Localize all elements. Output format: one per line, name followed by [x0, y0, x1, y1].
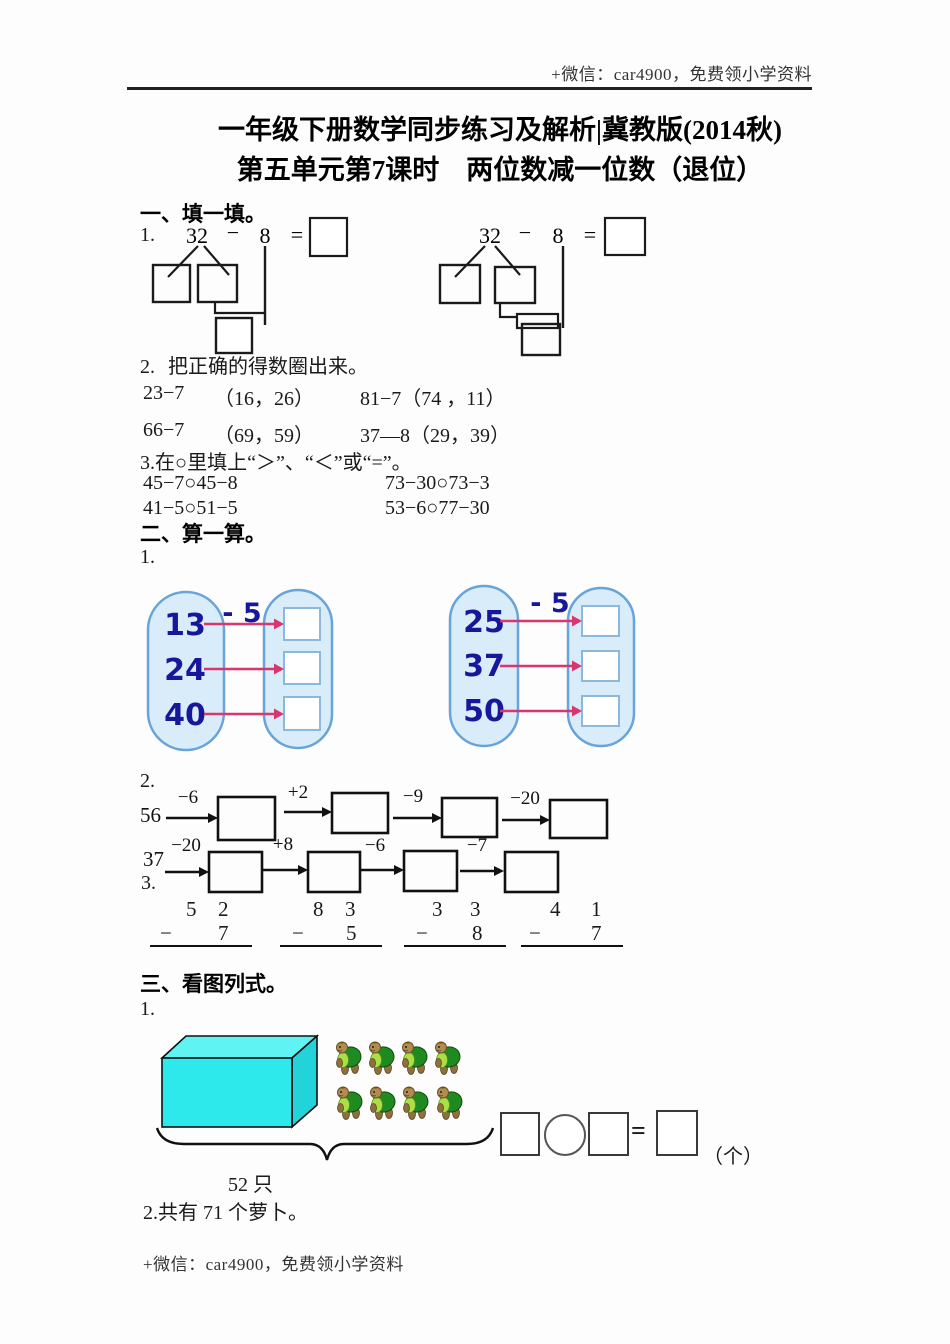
minus-sign: − [292, 921, 304, 946]
brace-count-label: 52 只 [228, 1168, 273, 1197]
q2-row-expr: 66−7 [143, 419, 184, 442]
bond-result-box[interactable] [216, 318, 252, 353]
chain-arrowhead [298, 865, 308, 875]
chain-arrowhead [322, 807, 332, 817]
tens-digit: 8 [313, 897, 324, 922]
bond-subtrahend: 8 [260, 223, 271, 248]
machine-answer-box[interactable] [582, 651, 619, 681]
equation-operator-circle[interactable] [544, 1114, 586, 1156]
calculation-chain-2: 37 −20 +8 −6 −7 [135, 835, 575, 897]
machine-input-value: 37 [463, 649, 505, 684]
subtrahend-digit: 8 [472, 921, 483, 946]
turtle-icon [371, 1087, 397, 1120]
ones-digit: 3 [345, 897, 356, 922]
q2-row-choices[interactable]: （69，59） [214, 419, 314, 448]
tens-digit: 5 [186, 897, 197, 922]
chain-op-label: +8 [273, 835, 293, 855]
q2-row-expr: 23−7 [143, 382, 184, 405]
chain-answer-box[interactable] [404, 851, 457, 891]
subtraction-machine-2: 25 37 50 - 5 [448, 580, 638, 752]
box-top-face [162, 1036, 317, 1058]
bond-equals-sign: = [584, 222, 596, 247]
page-subtitle: 第五单元第7课时 两位数减一位数（退位） [25, 148, 950, 187]
machine-input-value: 25 [463, 605, 505, 640]
s2q1-item-label: 1. [140, 546, 155, 569]
chain-answer-box[interactable] [308, 852, 360, 892]
turtle-icon [436, 1042, 462, 1075]
minus-sign: − [160, 921, 172, 946]
q2-row-right[interactable]: 81−7（74 ，11） [360, 382, 506, 411]
q3-instruction: 3.在○里填上“＞”、“＜”或“=”。 [140, 446, 412, 475]
chain-op-label: −20 [171, 835, 201, 856]
chain-start-value: 56 [140, 803, 161, 827]
ones-digit: 1 [591, 897, 602, 922]
machine-input-value: 50 [463, 694, 505, 729]
subtrahend-digit: 5 [346, 921, 357, 946]
bond-minus-sign: − [519, 220, 531, 245]
machine-answer-box[interactable] [284, 652, 320, 684]
turtle-icon [403, 1042, 429, 1075]
chain-arrowhead [208, 813, 218, 823]
machine-input-value: 13 [164, 608, 206, 643]
equation-operand-box[interactable] [588, 1112, 629, 1156]
equation-equals-sign: = [631, 1116, 646, 1146]
turtles-illustration [328, 1034, 478, 1129]
section-two-heading: 二、算一算。 [140, 518, 266, 548]
turtle-icon [338, 1087, 364, 1120]
vertical-problem[interactable]: 8 3 − 5 [280, 897, 382, 947]
s3q1-item-label: 1. [140, 998, 155, 1021]
worksheet-page: +微信：car4900，免费领小学资料 一年级下册数学同步练习及解析|冀教版(2… [0, 0, 950, 1344]
bond-branch-line [204, 246, 229, 275]
machine-answer-box[interactable] [284, 608, 320, 640]
chain-answer-box[interactable] [505, 852, 558, 892]
bond-minus-sign: − [227, 220, 239, 245]
box-front-face [162, 1058, 292, 1127]
bond-answer-box[interactable] [310, 218, 347, 256]
s3q2-text: 2.共有 71 个萝卜。 [143, 1196, 308, 1225]
bond-part-box[interactable] [153, 265, 190, 302]
q2-row-right[interactable]: 37—8（29，39） [360, 419, 510, 448]
turtle-icon [370, 1042, 396, 1075]
bond-minuend: 32 [479, 223, 501, 248]
bond-equals-sign: = [291, 222, 303, 247]
header-promo-text: +微信：car4900，免费领小学资料 [551, 60, 812, 85]
curly-brace [152, 1124, 497, 1172]
subtrahend-digit: 7 [218, 921, 229, 946]
machine-operation-label: - 5 [530, 588, 569, 619]
chain-arrowhead [394, 865, 404, 875]
bond-branch-line [168, 246, 198, 277]
cyan-box-illustration [155, 1030, 325, 1135]
tens-digit: 4 [550, 897, 561, 922]
chain-op-label: +2 [288, 782, 308, 803]
machine-answer-box[interactable] [582, 696, 619, 726]
turtle-icon [438, 1087, 464, 1120]
equation-operand-box[interactable] [500, 1112, 540, 1156]
turtle-icon [337, 1042, 363, 1075]
q2-row-choices[interactable]: （16，26） [214, 382, 314, 411]
machine-input-value: 40 [164, 698, 206, 733]
machine-answer-box[interactable] [582, 606, 619, 636]
equation-result-box[interactable] [656, 1110, 698, 1156]
chain-answer-box[interactable] [332, 793, 388, 833]
machine-answer-box[interactable] [284, 697, 320, 730]
bond-part-box[interactable] [495, 267, 535, 303]
chain-answer-box[interactable] [550, 800, 607, 838]
number-bond-diagram-left: 32 − 8 = [142, 216, 362, 366]
minus-sign: − [529, 921, 541, 946]
chain-arrowhead [432, 813, 442, 823]
ones-digit: 3 [470, 897, 481, 922]
subtraction-machine-1: 13 24 40 - 5 [146, 584, 336, 756]
vertical-problem[interactable]: 5 2 − 7 [150, 897, 252, 947]
tens-digit: 3 [432, 897, 443, 922]
equation-unit-label: （个） [703, 1140, 763, 1169]
chain-op-label: −20 [510, 788, 540, 809]
q3-row-left[interactable]: 41−5○51−5 [143, 497, 238, 520]
chain-answer-box[interactable] [442, 798, 497, 837]
turtle-icon [404, 1087, 430, 1120]
q2-item-label: 2. [140, 356, 155, 378]
minus-sign: − [416, 921, 428, 946]
bond-answer-box[interactable] [605, 218, 645, 255]
chain-op-label: −7 [467, 835, 487, 856]
chain-arrowhead [540, 815, 550, 825]
bond-minuend: 32 [186, 223, 208, 248]
chain-answer-box[interactable] [209, 852, 262, 892]
bond-connector-line [500, 303, 518, 317]
header-divider [127, 87, 812, 90]
section-three-heading: 三、看图列式。 [140, 968, 287, 998]
chain-op-label: −9 [403, 786, 423, 807]
chain-answer-box[interactable] [218, 797, 275, 840]
chain-op-label: −6 [178, 787, 198, 808]
q2-instruction: 把正确的得数圈出来。 [168, 356, 368, 378]
vertical-problem[interactable]: 3 3 − 8 [404, 897, 506, 947]
chain-arrowhead [494, 866, 504, 876]
subtrahend-digit: 7 [591, 921, 602, 946]
machine-input-value: 24 [164, 653, 206, 688]
chain-arrowhead [199, 867, 209, 877]
q2-line: 2. 把正确的得数圈出来。 [140, 350, 368, 379]
bond-connector-line [215, 302, 265, 313]
ones-digit: 2 [218, 897, 229, 922]
chain-op-label: −6 [365, 835, 385, 856]
q3-row-right[interactable]: 53−6○77−30 [385, 497, 490, 520]
s2q3-item-label: 3. [141, 872, 156, 895]
chain-start-value: 37 [143, 847, 164, 871]
bond-part-box[interactable] [198, 265, 237, 302]
q3-row-right[interactable]: 73−30○73−3 [385, 472, 490, 495]
bond-subtrahend: 8 [553, 223, 564, 248]
number-bond-diagram-right: 32 − 8 = [430, 216, 655, 366]
bond-branch-line [495, 246, 520, 275]
page-title: 一年级下册数学同步练习及解析|冀教版(2014秋) [25, 108, 950, 147]
q3-row-left[interactable]: 45−7○45−8 [143, 472, 238, 495]
vertical-problem[interactable]: 4 1 − 7 [521, 897, 623, 947]
footer-promo-text: +微信：car4900，免费领小学资料 [143, 1250, 404, 1275]
